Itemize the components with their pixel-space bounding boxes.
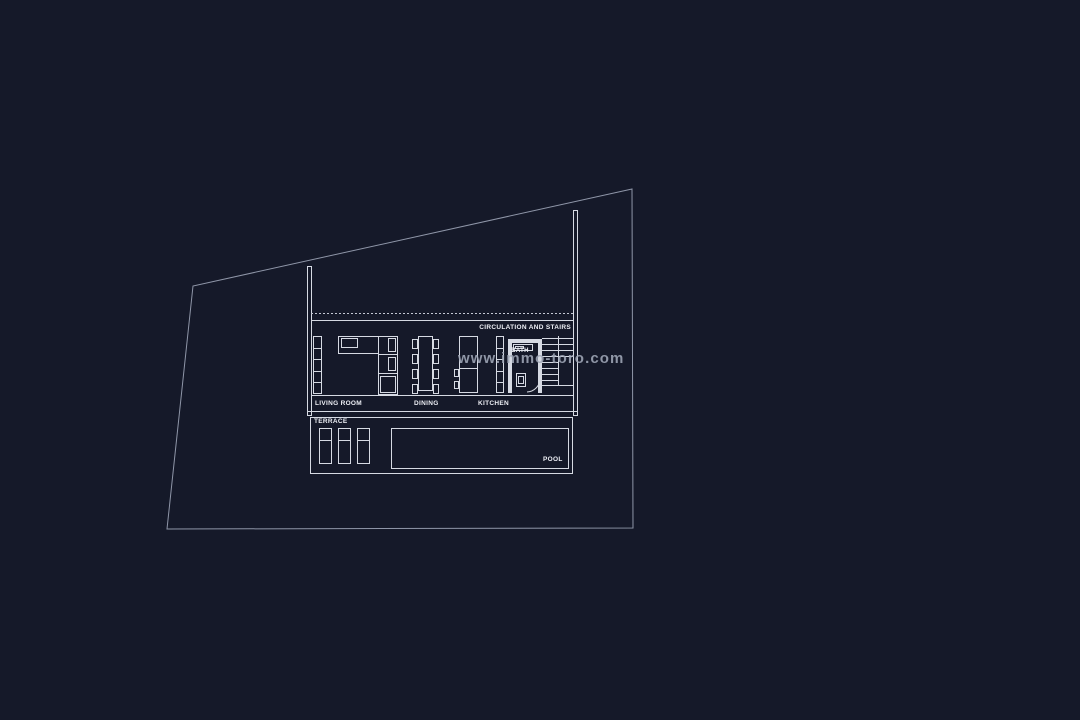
lounger-backrest-line [338, 440, 351, 441]
dining-chair [433, 354, 439, 364]
sofa-divider [378, 373, 398, 374]
sun-lounger [357, 428, 370, 464]
counter-divider [496, 348, 504, 349]
sofa-ottoman [341, 338, 358, 348]
counter-divider [496, 382, 504, 383]
watermark-text: www.immo-toro.com [458, 350, 624, 367]
stair-bottom-edge [542, 385, 573, 386]
dining-chair [412, 339, 418, 349]
stair-tread [542, 380, 558, 381]
sofa-cushion [388, 357, 396, 371]
floor-plan-canvas: CIRCULATION AND STAIRS BATH LIVING ROOM … [0, 0, 1080, 720]
dining-chair [412, 369, 418, 379]
living-room-shelf [313, 336, 322, 394]
dining-chair [433, 369, 439, 379]
bath-wall-top [508, 339, 542, 343]
dining-chair [412, 354, 418, 364]
lounger-backrest-line [357, 440, 370, 441]
dining-table [418, 336, 433, 391]
kitchen-stool [454, 369, 459, 377]
sofa-divider [378, 354, 398, 355]
shelf-divider [313, 348, 322, 349]
stair-tread [542, 374, 558, 375]
circulation-and-stairs-label: CIRCULATION AND STAIRS [478, 324, 571, 331]
kitchen-label: KITCHEN [478, 400, 509, 407]
stair-tread [542, 368, 558, 369]
south-facade-line [311, 395, 573, 396]
north-wall-line [311, 320, 573, 321]
outer-facade-line [307, 411, 578, 412]
left-wall-post [307, 266, 312, 416]
dining-chair [433, 384, 439, 394]
sun-lounger [338, 428, 351, 464]
sofa-cushion [388, 338, 396, 352]
lounger-backrest-line [319, 440, 332, 441]
sun-lounger [319, 428, 332, 464]
dining-label: DINING [414, 400, 439, 407]
dining-chair [412, 384, 418, 394]
shelf-divider [313, 371, 322, 372]
sofa-cushion [380, 376, 396, 393]
pool-label: POOL [543, 456, 563, 463]
island-divider [459, 368, 478, 369]
shelf-divider [313, 382, 322, 383]
counter-divider [496, 371, 504, 372]
terrace-label: TERRACE [314, 418, 348, 425]
kitchen-stool [454, 381, 459, 389]
living-room-label: LIVING ROOM [315, 400, 362, 407]
bath-toilet-bowl [518, 376, 524, 384]
right-wall-post [573, 210, 578, 416]
dining-chair [433, 339, 439, 349]
roof-overhang-dashed-line [311, 313, 573, 314]
shelf-divider [313, 359, 322, 360]
